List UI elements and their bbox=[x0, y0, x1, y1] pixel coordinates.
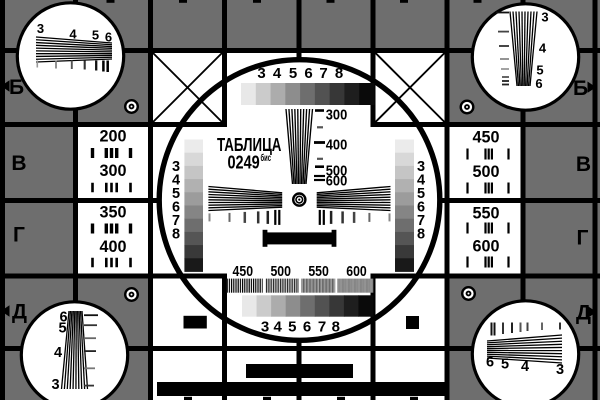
svg-text:0249: 0249 bbox=[228, 152, 260, 173]
svg-text:Г: Г bbox=[577, 227, 589, 250]
svg-text:300: 300 bbox=[326, 107, 348, 123]
svg-text:550: 550 bbox=[473, 205, 500, 223]
svg-text:400: 400 bbox=[326, 137, 348, 153]
svg-text:Д: Д bbox=[12, 301, 27, 324]
svg-text:3: 3 bbox=[261, 318, 269, 335]
svg-text:6: 6 bbox=[486, 355, 494, 371]
svg-text:200: 200 bbox=[100, 128, 127, 146]
svg-text:В: В bbox=[11, 152, 26, 175]
svg-text:5: 5 bbox=[501, 357, 509, 373]
svg-text:5: 5 bbox=[58, 320, 66, 336]
svg-text:6: 6 bbox=[105, 30, 112, 45]
svg-text:500: 500 bbox=[473, 163, 500, 181]
svg-text:450: 450 bbox=[233, 263, 254, 280]
svg-text:4: 4 bbox=[539, 41, 547, 56]
svg-text:7: 7 bbox=[318, 318, 326, 335]
svg-text:Б: Б bbox=[573, 77, 588, 100]
svg-text:600: 600 bbox=[326, 174, 348, 190]
svg-text:350: 350 bbox=[100, 204, 127, 222]
svg-text:4: 4 bbox=[521, 359, 529, 375]
svg-text:600: 600 bbox=[473, 238, 500, 256]
svg-text:5: 5 bbox=[92, 28, 99, 43]
svg-text:7: 7 bbox=[319, 65, 327, 82]
svg-text:4: 4 bbox=[54, 345, 62, 361]
svg-text:3: 3 bbox=[556, 362, 564, 378]
svg-text:8: 8 bbox=[332, 318, 340, 335]
svg-text:6: 6 bbox=[304, 65, 312, 82]
svg-text:300: 300 bbox=[100, 162, 127, 180]
svg-text:Б: Б bbox=[9, 76, 24, 99]
svg-text:4: 4 bbox=[273, 65, 282, 82]
svg-text:6: 6 bbox=[303, 318, 311, 335]
svg-text:8: 8 bbox=[417, 227, 425, 243]
svg-text:5: 5 bbox=[288, 318, 296, 335]
svg-text:500: 500 bbox=[270, 263, 291, 280]
svg-text:6: 6 bbox=[535, 76, 542, 91]
svg-text:5: 5 bbox=[289, 65, 297, 82]
svg-text:8: 8 bbox=[335, 65, 343, 82]
svg-text:400: 400 bbox=[100, 238, 127, 256]
svg-text:Г: Г bbox=[13, 224, 25, 247]
svg-text:4: 4 bbox=[69, 27, 77, 42]
svg-text:3: 3 bbox=[51, 377, 59, 393]
svg-text:600: 600 bbox=[346, 263, 367, 280]
svg-text:бис: бис bbox=[261, 152, 272, 164]
svg-text:3: 3 bbox=[257, 65, 265, 82]
svg-text:В: В bbox=[576, 153, 591, 176]
svg-text:3: 3 bbox=[541, 10, 548, 25]
svg-text:450: 450 bbox=[473, 129, 500, 147]
svg-text:4: 4 bbox=[274, 318, 283, 335]
svg-text:8: 8 bbox=[172, 227, 180, 243]
svg-text:3: 3 bbox=[37, 21, 44, 36]
svg-text:550: 550 bbox=[308, 263, 329, 280]
